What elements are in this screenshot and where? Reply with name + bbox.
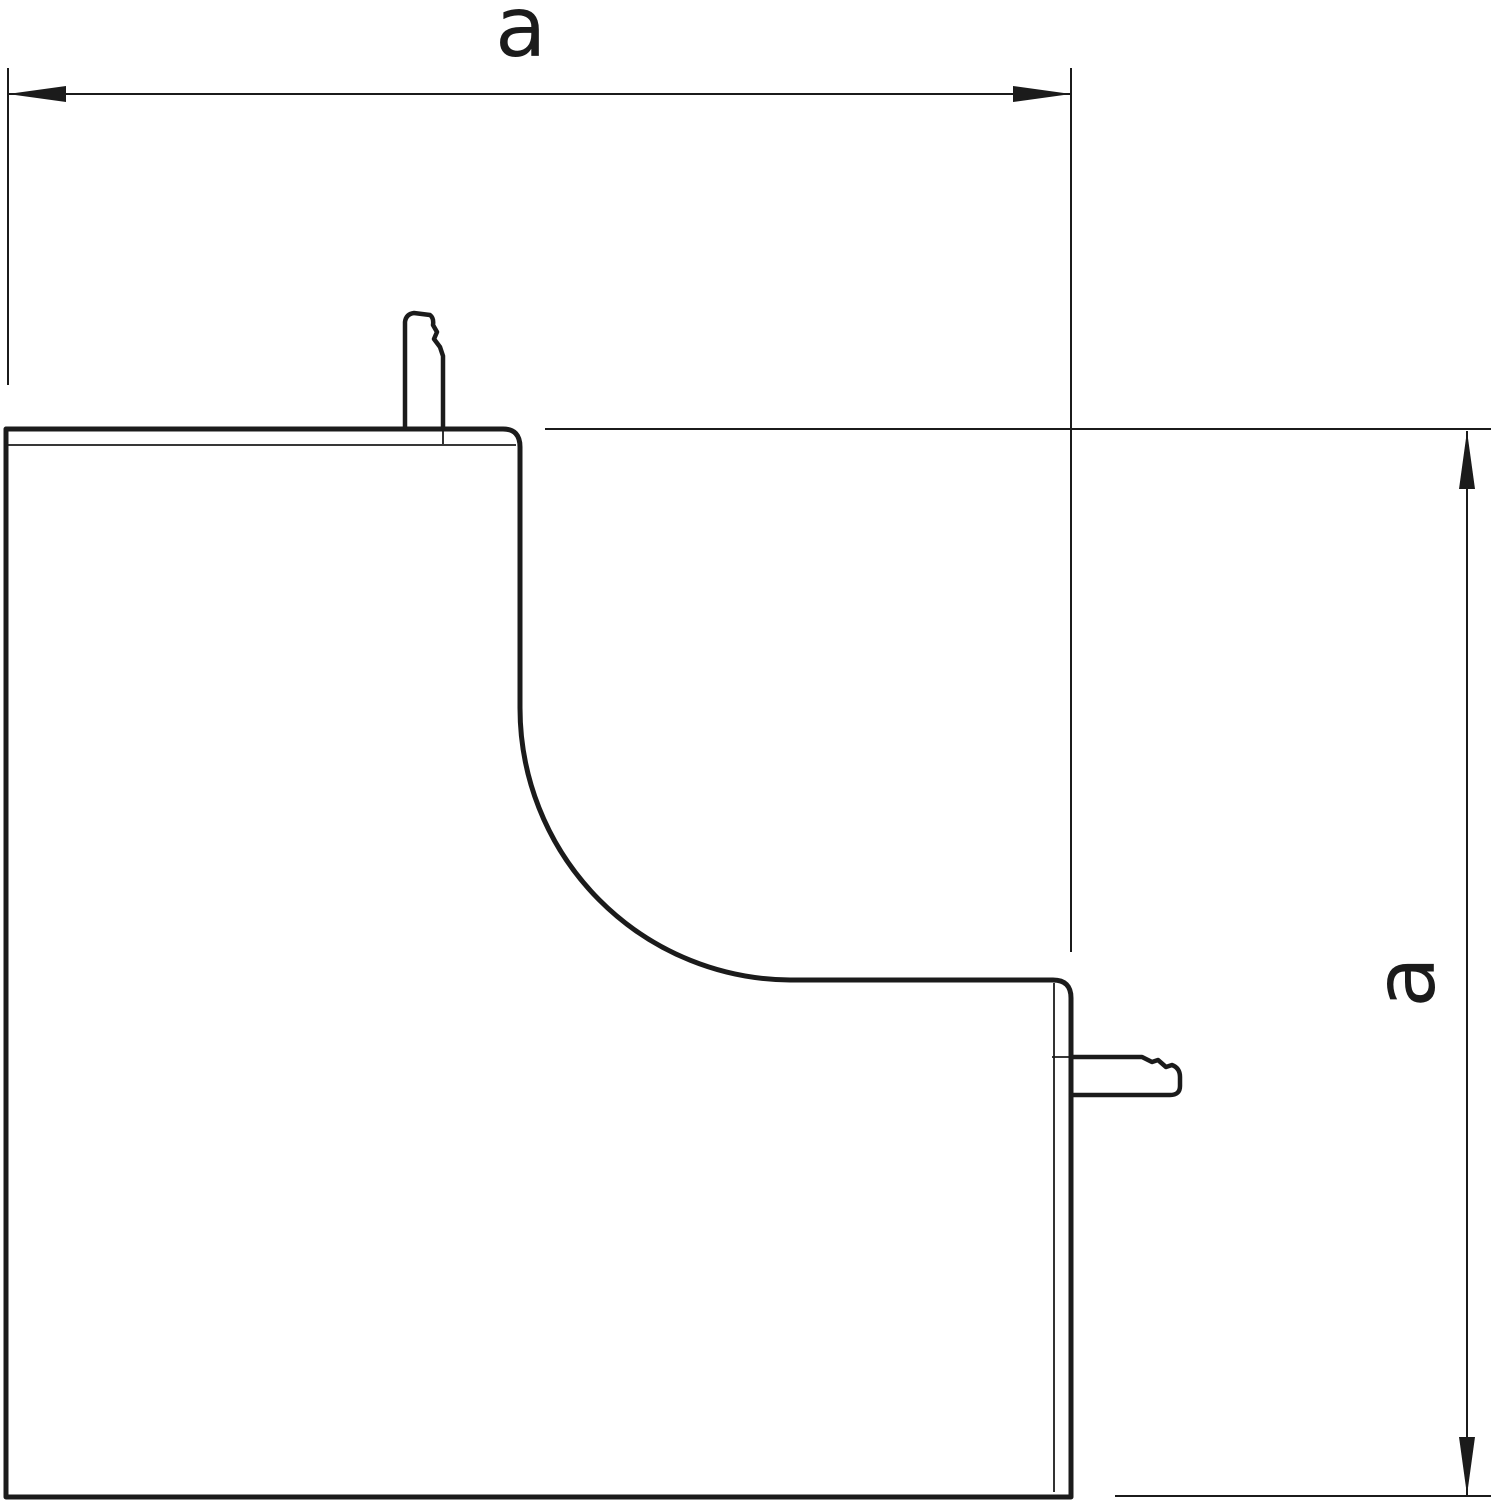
part-outline (6, 429, 1071, 1497)
arrowhead-down-icon (1459, 1437, 1475, 1495)
dimension-vertical (545, 429, 1491, 1496)
arrowhead-up-icon (1459, 431, 1475, 489)
arrowhead-right-icon (1013, 86, 1071, 102)
right-latch-clip (1071, 1057, 1180, 1095)
technical-drawing-canvas: a a (0, 0, 1491, 1500)
arrowhead-left-icon (8, 86, 66, 102)
dimension-horizontal (8, 68, 1071, 952)
top-latch-clip (405, 313, 443, 427)
corner-piece-drawing (0, 0, 1491, 1500)
horizontal-dimension-label: a (495, 0, 546, 69)
vertical-dimension-label: a (1363, 956, 1447, 1007)
